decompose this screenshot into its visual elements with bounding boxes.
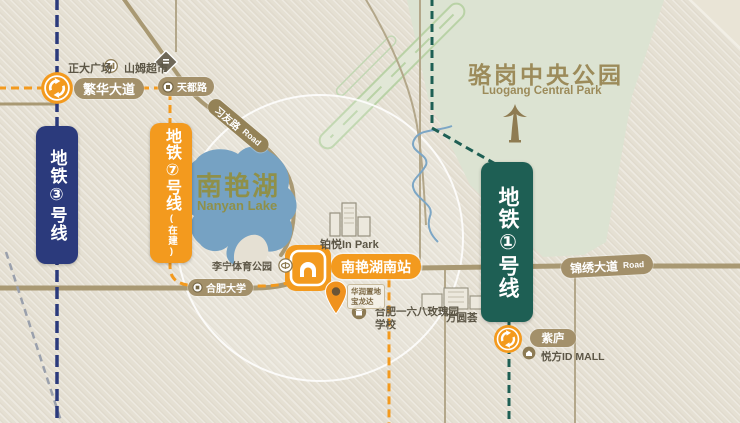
project-pin-icon xyxy=(324,280,348,316)
project-label-line2: 宝龙达 xyxy=(351,297,381,307)
metro-line3-label: 地铁③号线 xyxy=(45,149,70,242)
parcel-area xyxy=(688,0,740,52)
poi-label-zhengda: 正大广场 xyxy=(68,60,112,76)
station-icon xyxy=(192,282,203,293)
station-label: 紫庐 xyxy=(542,330,565,346)
station-badge-zilu: 紫庐 xyxy=(530,329,576,347)
station-label: 合肥大学 xyxy=(206,280,246,295)
road-label-en: Road xyxy=(623,259,645,270)
poi-label-boyue: 铂悦In Park xyxy=(320,236,379,252)
station-badge-tiandu: 天都路 xyxy=(158,77,214,96)
station-badge-nanyanhu-south: 南艳湖南站 xyxy=(331,254,421,279)
transfer-station-icon xyxy=(493,324,523,354)
poi-label-yuefang: 悦方ID MALL xyxy=(541,349,605,364)
road-label: 繁华大道 xyxy=(83,79,135,98)
railway-line xyxy=(6,252,62,423)
poi-label-lining: 李宁体育公园 xyxy=(212,258,272,273)
park-subtitle: Luogang Central Park xyxy=(482,85,602,97)
metro-line7-status: (在建) xyxy=(164,213,178,258)
mall-icon xyxy=(522,346,536,360)
real-estate-location-map: 繁华大道 天都路 习友路 Road 合肥大学 锦绣大道 Road 紫庐 南艳湖南… xyxy=(0,0,740,423)
transfer-station-icon xyxy=(40,71,74,105)
metro-line1-label: 地铁①号线 xyxy=(492,186,522,299)
poi-label-sams: 山姆超市 xyxy=(124,60,168,76)
lake-subtitle: Nanyan Lake xyxy=(197,198,277,213)
station-label: 南艳湖南站 xyxy=(341,257,411,277)
poi-label-fangyuanhui: 方圆荟 xyxy=(446,310,478,325)
project-pin-label: 华润置地 宝龙达 xyxy=(347,284,385,309)
station-label: 天都路 xyxy=(177,79,207,94)
station-badge-hefei-university: 合肥大学 xyxy=(188,279,253,296)
metro-line7-banner: 地铁⑦号线(在建) xyxy=(150,123,192,263)
stadium-icon xyxy=(278,258,293,273)
poi-label-school-line2: 学校 xyxy=(375,317,396,332)
metro-line7-label: 地铁⑦号线 xyxy=(159,128,183,211)
station-icon xyxy=(162,81,174,93)
metro-line3-banner: 地铁③号线 xyxy=(36,126,78,264)
monument-icon xyxy=(500,102,530,146)
road-badge-fanhua: 繁华大道 xyxy=(74,78,144,99)
road-label: 锦绣大道 xyxy=(570,257,619,276)
metro-line1-banner: 地铁①号线 xyxy=(481,162,533,322)
project-label-line1: 华润置地 xyxy=(351,287,381,297)
buildings-sketch-icon xyxy=(328,200,374,238)
